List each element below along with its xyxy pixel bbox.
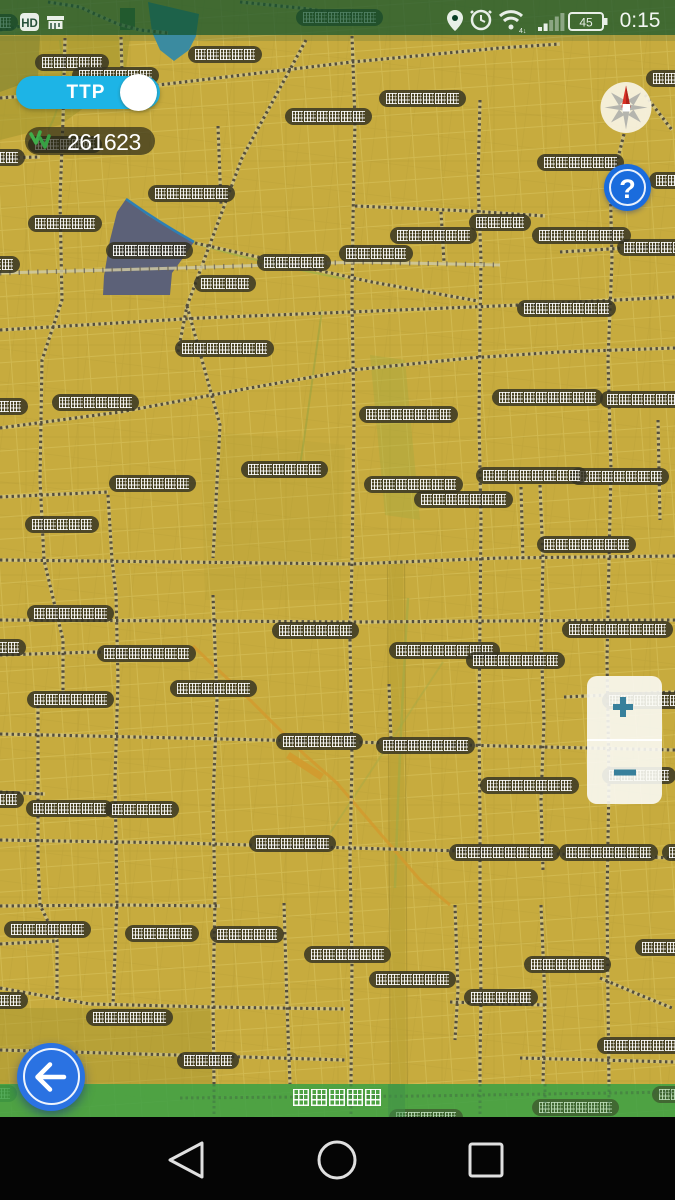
svg-text:0:15: 0:15: [620, 9, 661, 32]
svg-text:HD: HD: [21, 18, 38, 30]
svg-text:45: 45: [579, 16, 593, 30]
svg-text:4↓: 4↓: [519, 28, 526, 35]
